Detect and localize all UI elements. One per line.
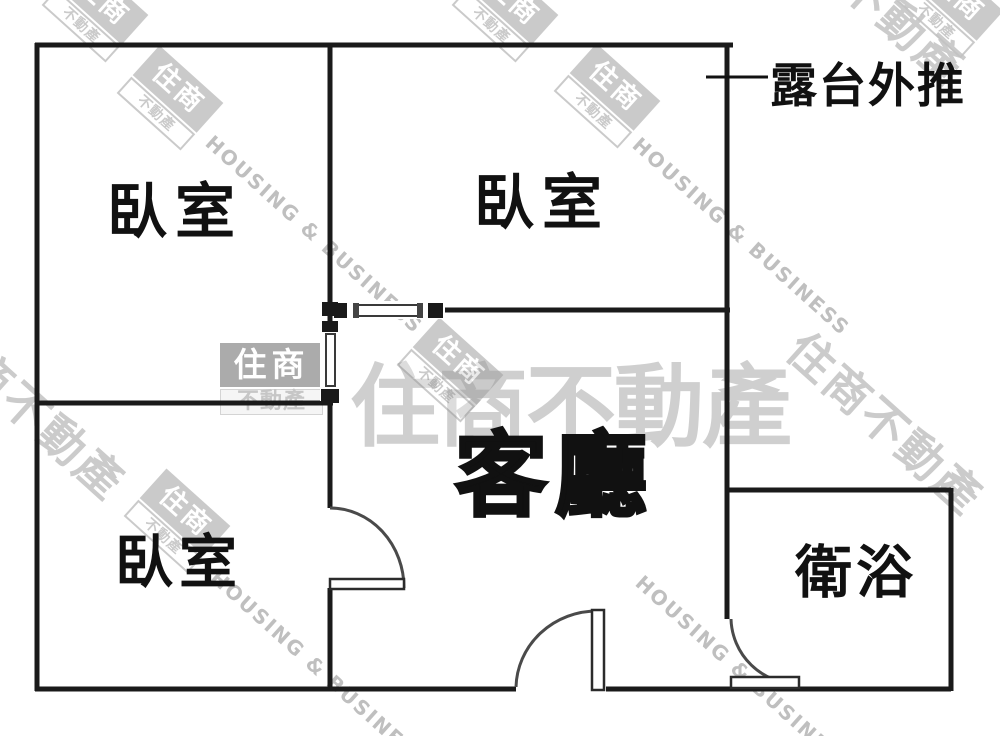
wall-junction-block bbox=[321, 389, 339, 403]
wall-junction-block bbox=[322, 302, 338, 316]
room-label-bathroom: 衛浴 bbox=[795, 527, 917, 609]
door-leaf-entrance bbox=[592, 610, 604, 690]
room-label-bedroom-top-right: 臥室 bbox=[474, 155, 610, 242]
window-cap bbox=[417, 303, 423, 318]
window-cap bbox=[353, 303, 359, 318]
room-label-bedroom-top-left: 臥室 bbox=[107, 164, 243, 251]
balcony-annotation-label: 露台外推 bbox=[770, 47, 966, 116]
door-arc-bathroom bbox=[731, 619, 798, 684]
window-pane-vertical bbox=[326, 334, 335, 386]
door-leaf-bedroom bbox=[330, 579, 404, 589]
window-jamb bbox=[322, 321, 338, 332]
door-leaf-bathroom bbox=[731, 677, 799, 688]
door-arc-bedroom bbox=[330, 508, 404, 588]
door-arc-entrance bbox=[516, 611, 597, 687]
window-jamb bbox=[428, 303, 443, 318]
windows bbox=[320, 301, 445, 403]
window-pane-horizontal bbox=[355, 305, 421, 316]
room-label-living-room: 客廳 bbox=[455, 402, 655, 535]
floor-plan: 住商不動產 住商 不動產 住商 不動產 住商 不動產 住商 不動產 住商 不動產… bbox=[0, 0, 1000, 736]
room-label-bedroom-bottom-left: 臥室 bbox=[115, 515, 243, 599]
